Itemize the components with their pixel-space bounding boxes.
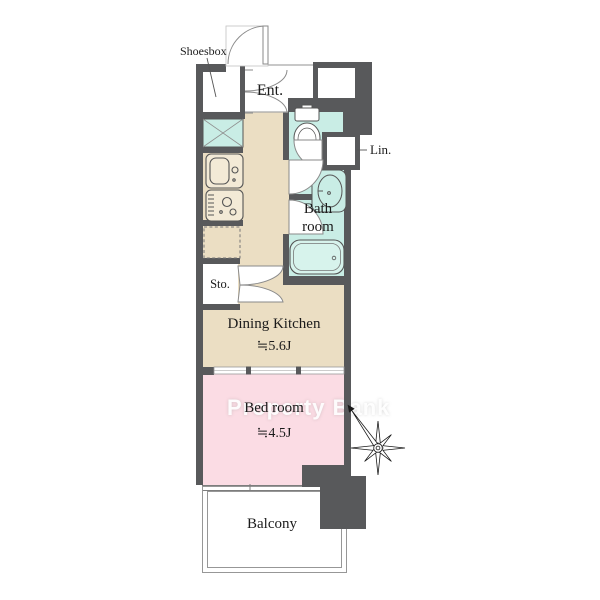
label-dining-kitchen: Dining Kitchen [228, 316, 321, 333]
label-dining-kitchen-size: ≒5.6J [257, 338, 292, 355]
stove-icon [206, 190, 243, 221]
label-bathroom: Bath room [302, 200, 334, 236]
entrance-door-icon [226, 26, 268, 66]
kitchen-sink-icon [206, 154, 243, 188]
label-bedroom-size: ≒4.5J [257, 425, 292, 442]
compass-star-icon [345, 403, 405, 475]
label-shoesbox: Shoesbox [180, 44, 227, 59]
shoesbox-leader-line [207, 58, 216, 97]
label-linen: Lin. [370, 142, 391, 158]
label-storage: Sto. [210, 277, 230, 292]
washing-machine-pan-icon [203, 119, 243, 147]
sliding-door [214, 367, 344, 375]
floor-plan: Property Bank [0, 0, 600, 600]
fixtures-overlay [0, 0, 600, 600]
bathtub-icon [290, 240, 344, 274]
refrigerator-space-icon [204, 227, 240, 258]
label-bedroom: Bed room [244, 400, 304, 417]
label-entrance: Ent. [257, 82, 283, 100]
storage-doors-icon [238, 266, 283, 302]
label-balcony: Balcony [247, 516, 297, 533]
